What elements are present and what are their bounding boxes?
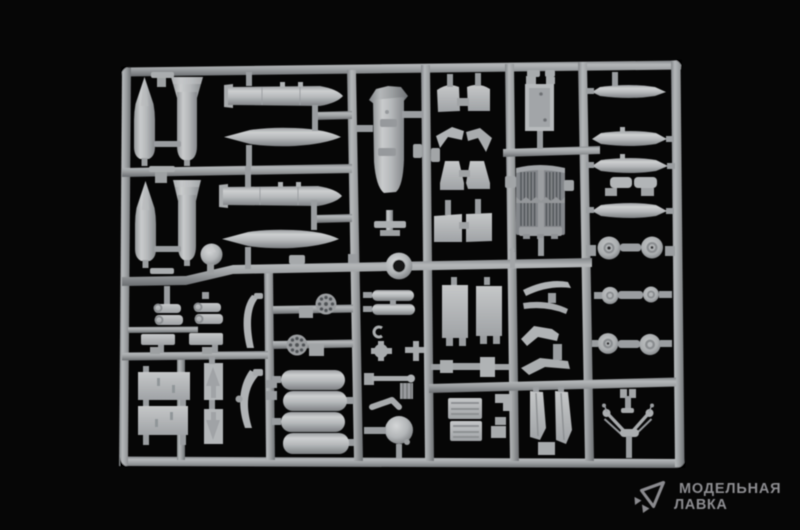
svg-text:ЛАВКА: ЛАВКА xyxy=(674,497,727,513)
svg-text:МОДЕЛЬНАЯ: МОДЕЛЬНАЯ xyxy=(679,481,781,497)
